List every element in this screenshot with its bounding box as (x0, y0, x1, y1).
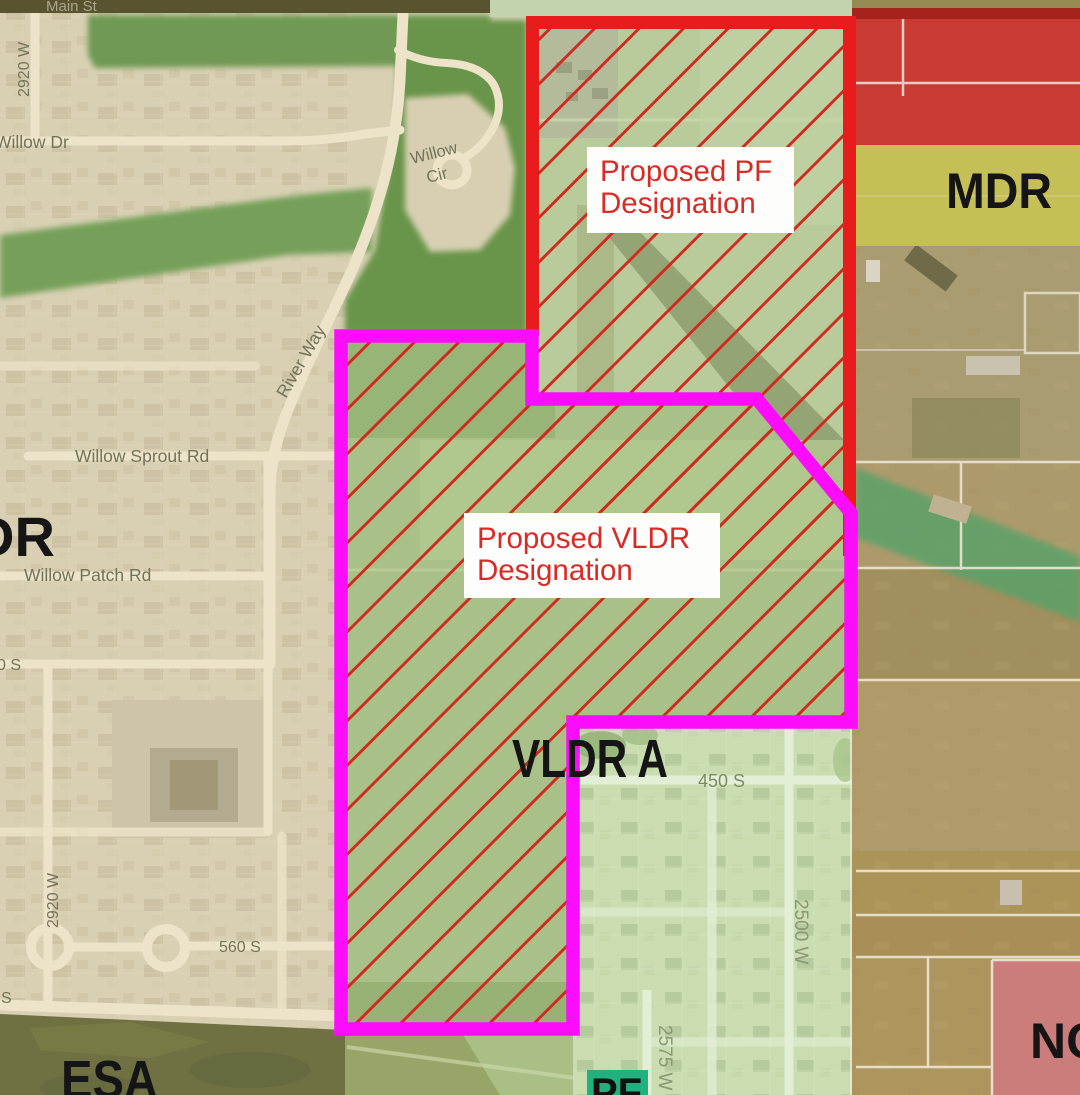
svg-text:450 S: 450 S (698, 771, 745, 791)
svg-text:Willow Dr: Willow Dr (0, 132, 69, 152)
svg-text:Main St: Main St (46, 0, 98, 15)
svg-text:Proposed PF: Proposed PF (600, 155, 772, 188)
svg-text:PF: PF (591, 1071, 642, 1095)
svg-text:2920 W: 2920 W (16, 41, 33, 97)
svg-text:MDR: MDR (946, 163, 1052, 219)
svg-text:Designation: Designation (600, 187, 756, 220)
svg-text:560 S: 560 S (219, 939, 261, 956)
svg-text:2920 W: 2920 W (45, 872, 62, 928)
svg-text:Designation: Designation (477, 554, 633, 587)
svg-text:Willow Sprout Rd: Willow Sprout Rd (75, 446, 209, 466)
svg-text:2575 W: 2575 W (654, 1025, 675, 1091)
svg-text:NC: NC (1030, 1013, 1080, 1069)
svg-text:Proposed VLDR: Proposed VLDR (477, 522, 690, 555)
svg-text:0 S: 0 S (0, 657, 21, 674)
svg-text:DR: DR (0, 505, 55, 568)
svg-text:ESA: ESA (61, 1050, 158, 1095)
svg-text:Willow Patch Rd: Willow Patch Rd (24, 565, 151, 585)
svg-text:2500 W: 2500 W (790, 899, 811, 965)
svg-text:VLDR A: VLDR A (512, 729, 668, 789)
svg-text:S: S (1, 990, 12, 1007)
